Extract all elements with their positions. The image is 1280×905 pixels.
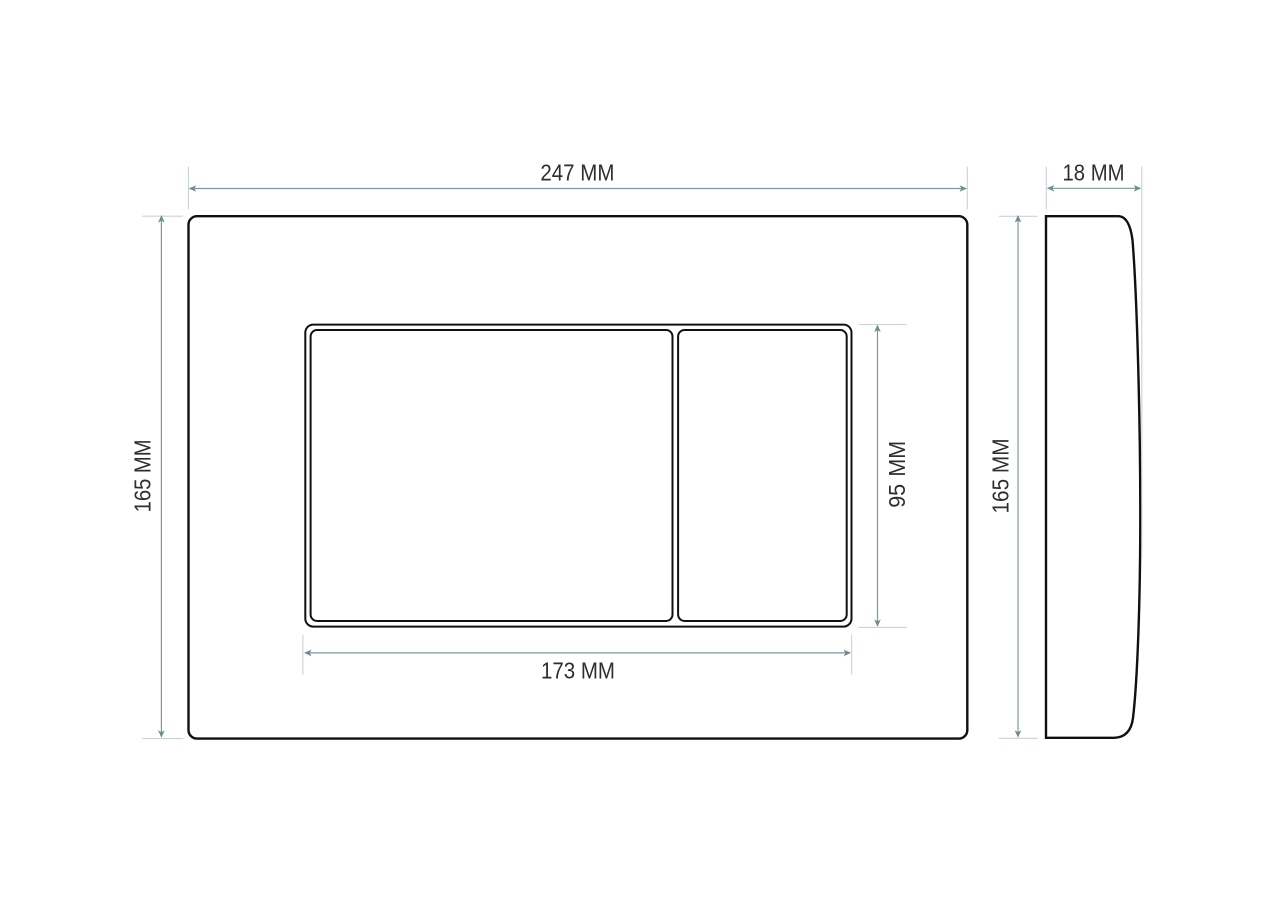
svg-text:165 MM: 165 MM (987, 439, 1013, 514)
svg-text:95 MM: 95 MM (884, 441, 910, 508)
svg-text:247 MM: 247 MM (540, 160, 614, 186)
svg-text:18 MM: 18 MM (1063, 160, 1125, 186)
svg-text:165 MM: 165 MM (130, 439, 156, 512)
svg-text:173 MM: 173 MM (541, 658, 615, 684)
